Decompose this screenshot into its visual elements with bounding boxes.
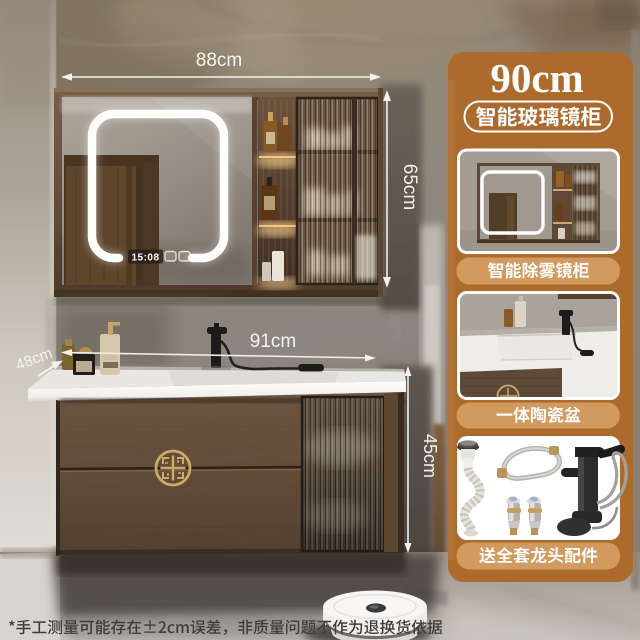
svg-text:90cm: 90cm bbox=[490, 55, 583, 101]
svg-text:45cm: 45cm bbox=[420, 434, 440, 478]
svg-text:91cm: 91cm bbox=[250, 331, 296, 352]
svg-text:65cm: 65cm bbox=[399, 164, 420, 210]
svg-text:88cm: 88cm bbox=[196, 50, 242, 71]
svg-text:15:08: 15:08 bbox=[131, 253, 159, 264]
